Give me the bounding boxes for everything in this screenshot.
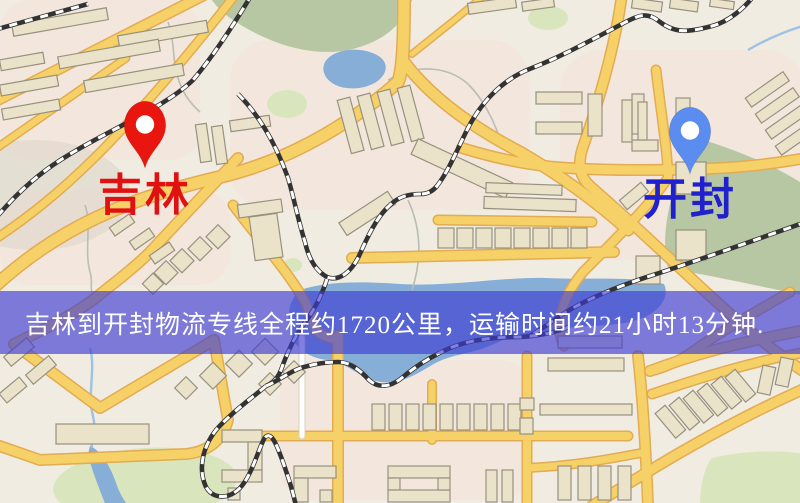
destination-label: 开封 bbox=[643, 178, 737, 222]
map-canvas bbox=[0, 0, 800, 503]
map-screenshot: 吉林到开封物流专线全程约1720公里，运输时间约21小时13分钟. 吉林 开封 bbox=[0, 0, 800, 503]
origin-label: 吉林 bbox=[98, 174, 192, 218]
route-summary-text: 吉林到开封物流专线全程约1720公里，运输时间约21小时13分钟. bbox=[25, 305, 764, 341]
route-info-banner: 吉林到开封物流专线全程约1720公里，运输时间约21小时13分钟. bbox=[0, 291, 800, 354]
